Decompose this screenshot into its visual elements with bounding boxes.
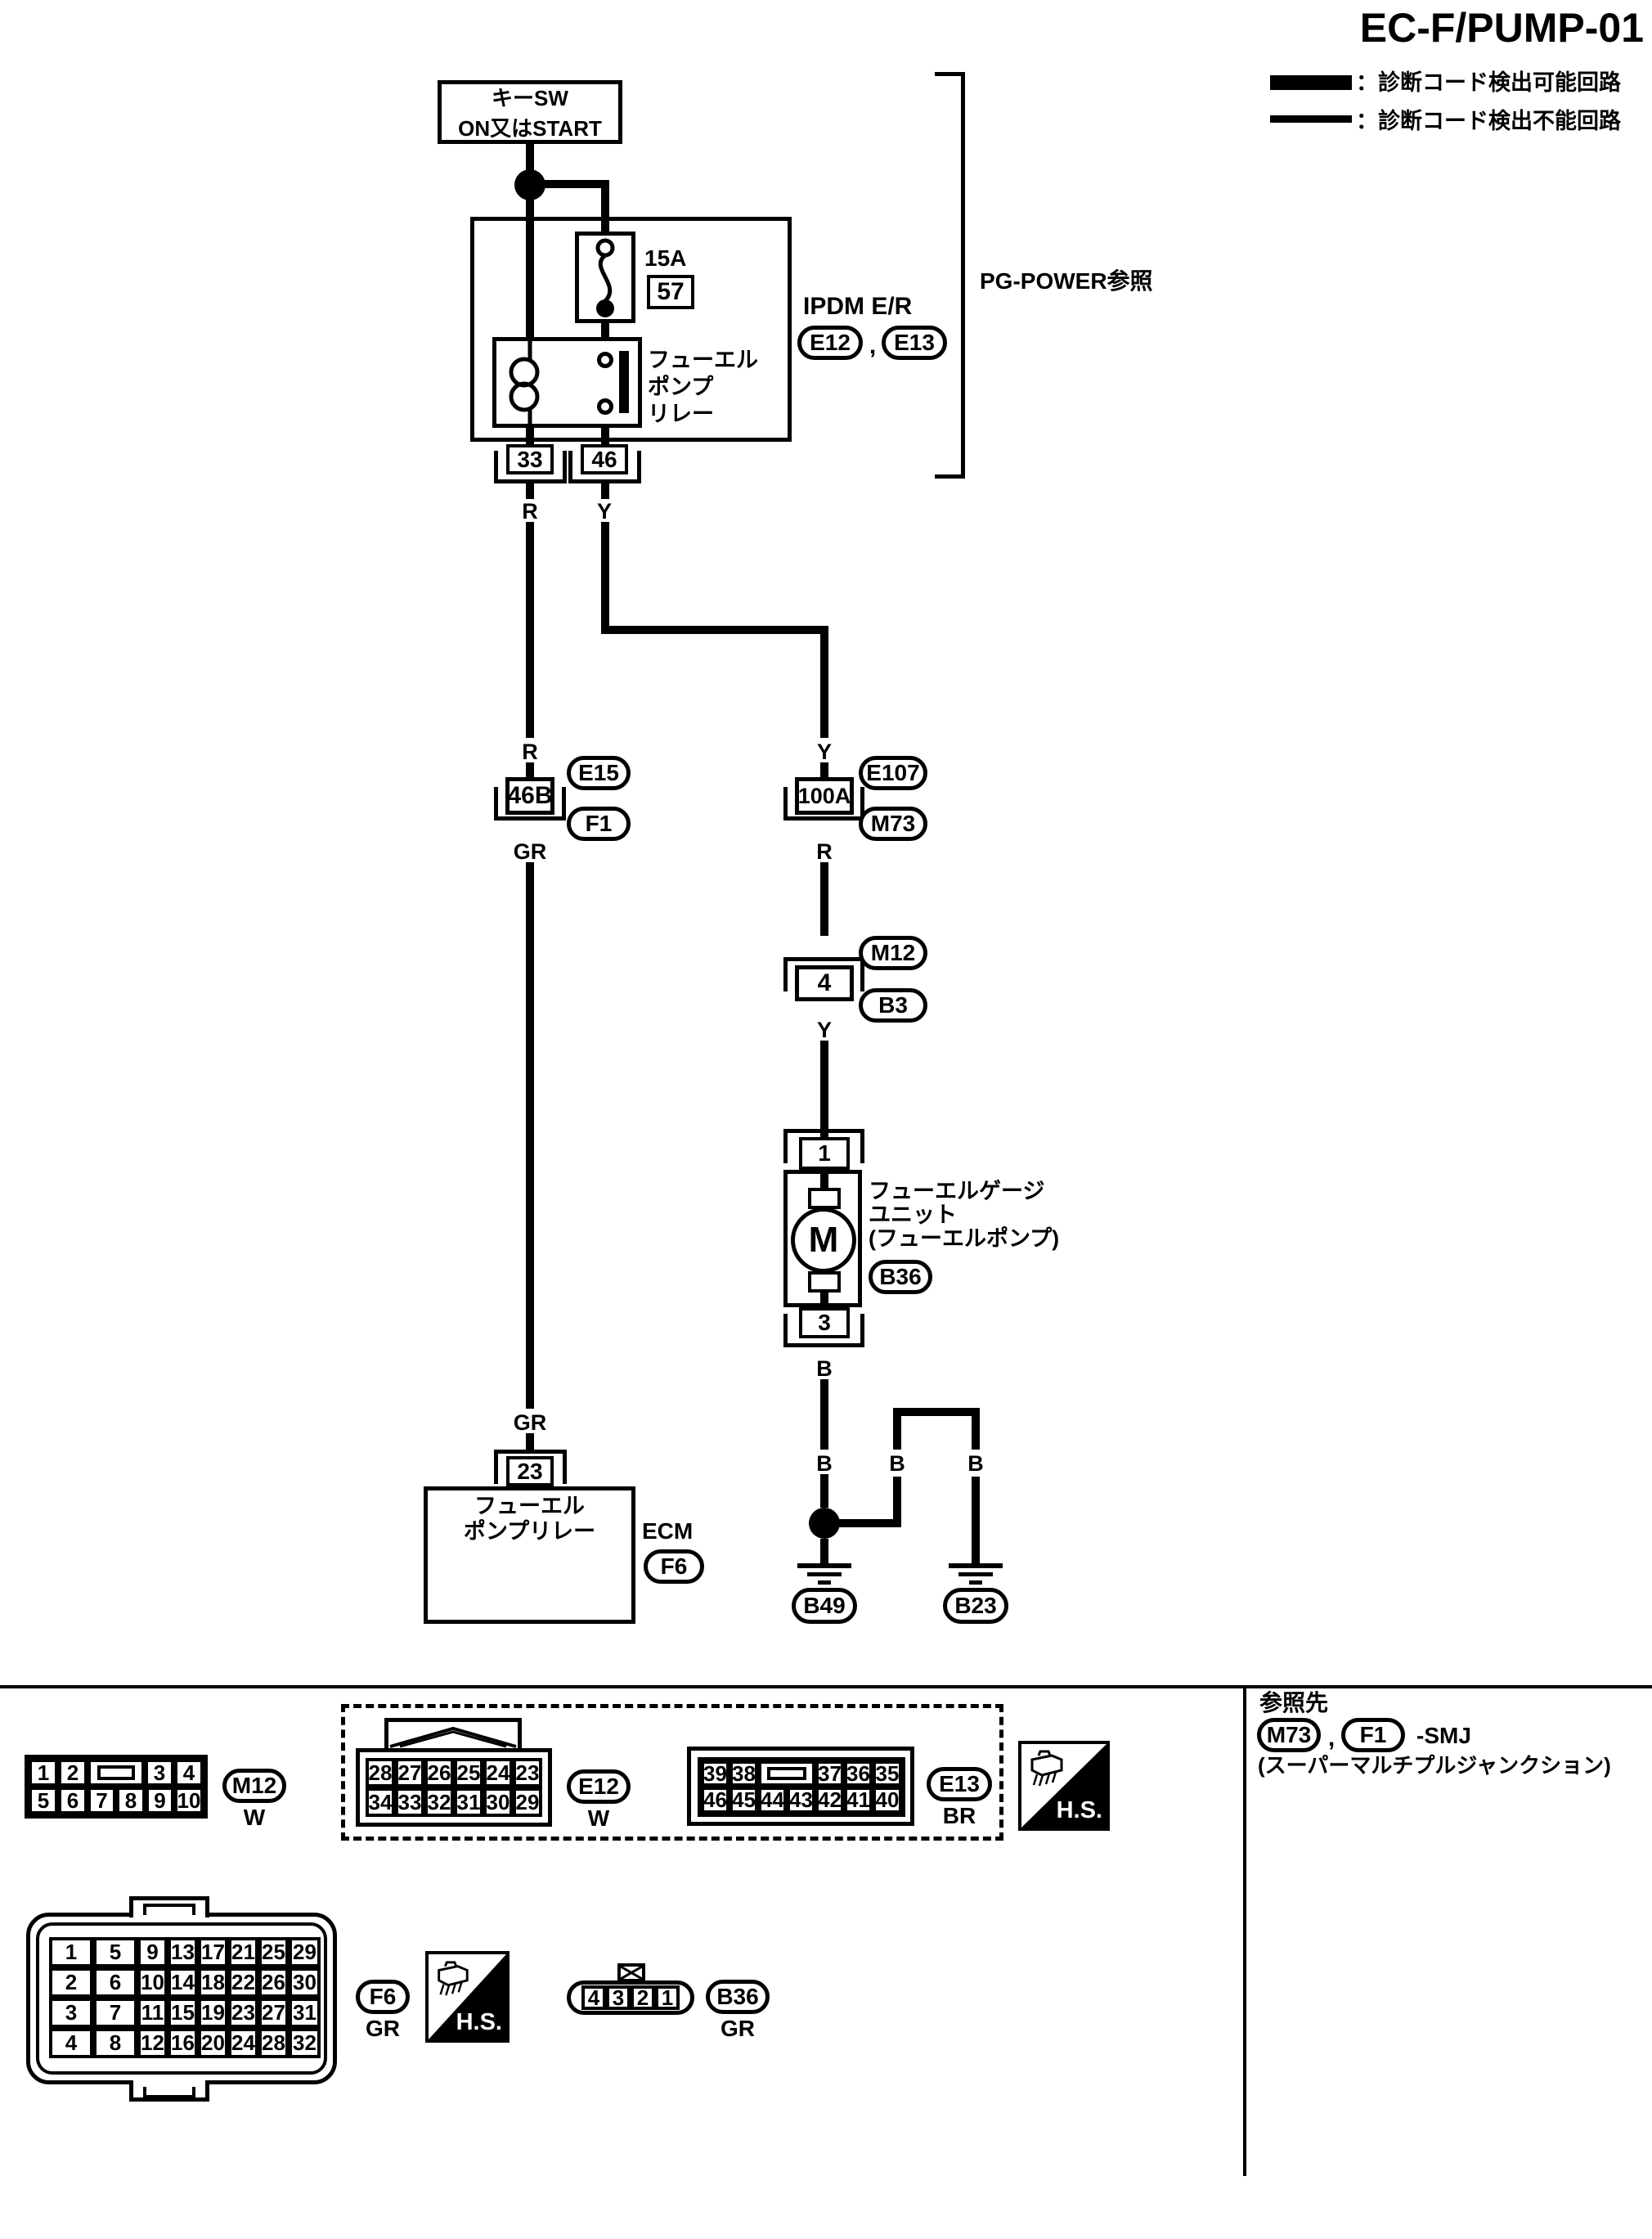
connector-ref-f6: F6 xyxy=(644,1549,704,1584)
reference-conn-m73: M73 xyxy=(1257,1718,1321,1752)
ecm-relay-name-line1: フューエル xyxy=(428,1494,631,1519)
b36-pin: 2 xyxy=(631,1985,655,2010)
f6-pin: 25 xyxy=(258,1937,289,1967)
f6-pin: 1 xyxy=(49,1937,93,1967)
pump-pin-3: 3 xyxy=(799,1307,850,1338)
key-switch-line2: ON又はSTART xyxy=(458,112,602,142)
smj100a-bracket-left xyxy=(783,787,788,821)
f6-pin: 27 xyxy=(258,1998,289,2028)
pump-pin1-bracket-top xyxy=(783,1129,864,1133)
f6-pin: 26 xyxy=(258,1967,289,1998)
m12-pin: 9 xyxy=(146,1787,174,1814)
relay-name: フューエル ポンプ リレー xyxy=(648,347,787,428)
wire-pin33-stub xyxy=(526,483,534,501)
pump-brush-top xyxy=(808,1188,841,1209)
connector-ref-e12: E12 xyxy=(797,326,863,360)
e12-pin: 31 xyxy=(454,1787,483,1817)
e12-color-code: W xyxy=(567,1805,631,1832)
wire-branch-left-v2 xyxy=(893,1474,901,1527)
wire-color-y-1: Y xyxy=(578,499,631,524)
f6-pin: 28 xyxy=(258,2028,289,2058)
wire-r-left xyxy=(526,522,534,738)
connector-icon xyxy=(1026,1748,1066,1789)
e13-pin: 45 xyxy=(729,1787,758,1814)
f6-pin: 12 xyxy=(137,2028,168,2058)
key-switch-box: キーSW ON又はSTART xyxy=(438,80,622,144)
m12-pin: 3 xyxy=(145,1759,174,1787)
f6-pin: 22 xyxy=(228,1967,258,1998)
relay-contact-top xyxy=(597,352,613,368)
ecm-pin-23: 23 xyxy=(506,1456,554,1486)
connector-ref-e107: E107 xyxy=(859,756,927,790)
relay-name-line1: フューエル xyxy=(648,347,787,374)
e13-color-code: BR xyxy=(927,1803,992,1829)
f6-pin: 7 xyxy=(93,1998,137,2028)
ground-b49-bar3 xyxy=(818,1580,831,1585)
ecm-label: ECM xyxy=(642,1518,724,1544)
wire-b-1 xyxy=(820,1379,828,1450)
f6-pin: 11 xyxy=(137,1998,168,2028)
e12-connector-label: E12 xyxy=(567,1769,631,1804)
smj100a-bracket-bottom xyxy=(783,816,864,821)
e12-connector-tab xyxy=(384,1718,522,1752)
e13-pin: 42 xyxy=(815,1787,844,1814)
b36-key-x-icon xyxy=(621,1967,642,1979)
f6-pin: 6 xyxy=(93,1967,137,1998)
f6-pin: 3 xyxy=(49,1998,93,2028)
ground-b49-bar2 xyxy=(807,1572,842,1576)
legend-thin-line xyxy=(1270,115,1352,123)
wire-y-down2 xyxy=(820,626,828,738)
pump-pin3-bracket-right xyxy=(860,1314,864,1347)
e13-pin: 35 xyxy=(873,1760,902,1787)
pump-lead-bottom xyxy=(820,1291,828,1309)
f6-pin: 30 xyxy=(289,1967,321,1998)
pin46-bracket-right xyxy=(637,451,641,483)
fuel-gauge-name-line1: フューエルゲージ xyxy=(869,1180,1138,1203)
wire-branch-to-fuse xyxy=(601,180,609,218)
legend-undetectable-text: ：診断コード検出不能回路 xyxy=(1356,109,1652,134)
e13-pin: 36 xyxy=(844,1760,873,1787)
f6-pin-grid: 1 5 9 13 17 21 25 29 2 6 10 14 18 22 26 … xyxy=(49,1937,321,2058)
ground-ref-b49: B49 xyxy=(792,1588,857,1624)
wire-b-2 xyxy=(820,1474,828,1508)
m12-pin: 8 xyxy=(116,1787,146,1814)
ground-b23-bar2 xyxy=(958,1572,993,1576)
f6-connector-label: F6 xyxy=(356,1980,410,2014)
wire-pin46-stub xyxy=(601,483,609,501)
e12-pin: 30 xyxy=(483,1787,513,1817)
wire-y-horizontal xyxy=(601,626,828,634)
fuse-icon xyxy=(579,236,631,319)
b36-connector-face: 4 3 2 1 xyxy=(567,1980,694,2015)
harness-side-view-symbol: H.S. xyxy=(425,1951,510,2043)
f6-pin: 32 xyxy=(289,2028,321,2058)
pin33-bracket-left xyxy=(494,451,498,483)
m12-key-slot xyxy=(88,1759,145,1787)
e12-pin: 29 xyxy=(513,1787,542,1817)
m12-pin: 1 xyxy=(29,1759,58,1787)
wire-ground-branch-h xyxy=(824,1519,901,1527)
harness-side-view-symbol: H.S. xyxy=(1018,1741,1110,1831)
fuel-gauge-name: フューエルゲージ ユニット (フューエルポンプ) xyxy=(869,1180,1138,1251)
wire-gr-to-ecm xyxy=(526,1433,534,1450)
hs-label: H.S. xyxy=(1057,1797,1102,1824)
e12-pin: 26 xyxy=(424,1758,454,1787)
wire-keysw-feed xyxy=(526,144,534,172)
m12-color-code: W xyxy=(222,1805,286,1831)
legend-detectable-text: ：診断コード検出可能回路 xyxy=(1356,70,1652,96)
wire-y-to-smj xyxy=(820,762,828,777)
m12-pin: 7 xyxy=(88,1787,116,1814)
pump-pin3-bracket-left xyxy=(783,1314,788,1347)
pump-brush-bottom xyxy=(808,1271,841,1293)
m12-pin: 5 xyxy=(29,1787,58,1814)
joint-bracket-left xyxy=(783,957,788,991)
e13-connector-face: 39 38 37 36 35 46 45 44 43 42 41 40 xyxy=(687,1747,914,1826)
b36-connector-label: B36 xyxy=(706,1980,770,2014)
pump-lead-top xyxy=(820,1170,828,1189)
reference-conn-f1: F1 xyxy=(1341,1718,1405,1752)
pin46-bracket-left xyxy=(568,451,572,483)
f6-color-code: GR xyxy=(356,2016,410,2042)
reference-comma: , xyxy=(1323,1724,1340,1753)
wire-contact-to-pin46 xyxy=(601,426,609,446)
e13-pin: 46 xyxy=(701,1787,729,1814)
key-switch-line1: キーSW xyxy=(492,82,568,112)
e12-pin: 34 xyxy=(366,1787,395,1817)
e13-pin: 37 xyxy=(815,1760,844,1787)
ecm-pin-bracket-top xyxy=(494,1450,567,1454)
f6-pin: 14 xyxy=(168,1967,198,1998)
wire-branch-horizontal xyxy=(530,180,609,188)
fuel-gauge-name-line3: (フューエルポンプ) xyxy=(869,1227,1138,1251)
pump-motor-symbol: M xyxy=(791,1207,856,1273)
wire-to-ground-b49 xyxy=(820,1539,828,1565)
fuse-symbol xyxy=(575,232,635,323)
relay-name-line2: ポンプ xyxy=(648,374,787,401)
b36-color-code: GR xyxy=(706,2016,770,2042)
f6-pin: 21 xyxy=(228,1937,258,1967)
b36-pin: 4 xyxy=(581,1985,606,2010)
pump-pin1-bracket-right xyxy=(860,1129,864,1163)
smj46b-bracket-left xyxy=(494,787,498,821)
connector-ref-e15: E15 xyxy=(567,756,631,790)
e13-pin: 44 xyxy=(758,1787,787,1814)
wire-branch-top-h xyxy=(893,1408,980,1416)
reference-bracket-top-tick xyxy=(935,72,965,76)
ground-ref-b23: B23 xyxy=(943,1588,1008,1624)
ipdm-pin-46: 46 xyxy=(581,444,628,474)
ipdm-unit-name: IPDM E/R xyxy=(803,293,983,321)
connector-icon xyxy=(433,1958,472,1999)
connector-ref-b36: B36 xyxy=(869,1260,932,1294)
f6-pin: 20 xyxy=(198,2028,228,2058)
wire-color-r-1: R xyxy=(504,499,556,524)
f6-pin: 8 xyxy=(93,2028,137,2058)
wire-color-b-1: B xyxy=(798,1356,851,1382)
e13-pin: 41 xyxy=(844,1787,873,1814)
wire-y-to-pump xyxy=(820,1041,828,1137)
hs-label: H.S. xyxy=(456,2009,502,2036)
connector-ref-e13: E13 xyxy=(882,326,947,360)
pump-pin3-bracket-bottom xyxy=(783,1343,864,1347)
e12-tab-chevron-icon xyxy=(388,1722,518,1748)
e13-key-slot xyxy=(758,1760,815,1787)
smj-pin-100a: 100A xyxy=(795,777,854,815)
ecm-box: フューエル ポンプリレー xyxy=(424,1486,635,1624)
footer-separator-line xyxy=(0,1685,1652,1688)
e13-pin: 43 xyxy=(787,1787,815,1814)
connector-ref-f1: F1 xyxy=(567,807,631,841)
m12-pin: 4 xyxy=(174,1759,204,1787)
smj-pin-46b: 46B xyxy=(505,777,554,815)
wire-r-to-smj xyxy=(526,762,534,777)
f6-pin: 24 xyxy=(228,2028,258,2058)
wire-y-down xyxy=(601,522,609,634)
wire-color-b-4: B xyxy=(949,1451,1002,1477)
legend-thick-line xyxy=(1270,75,1352,90)
b36-pin: 3 xyxy=(606,1985,631,2010)
ground-b23-bar1 xyxy=(949,1563,1003,1568)
wire-branch-right-v2 xyxy=(972,1474,980,1565)
page-title: EC-F/PUMP-01 xyxy=(1145,5,1644,52)
e12-pin: 25 xyxy=(454,1758,483,1787)
f6-pin: 15 xyxy=(168,1998,198,2028)
f6-pin: 16 xyxy=(168,2028,198,2058)
f6-pin: 18 xyxy=(198,1967,228,1998)
pump-pin-1: 1 xyxy=(799,1137,850,1170)
m12-connector-label: M12 xyxy=(222,1769,286,1803)
reference-smj-note: (スーパーマルチプルジャンクション) xyxy=(1258,1754,1650,1778)
wire-branch-right-v1 xyxy=(972,1416,980,1450)
wire-branch-left-v1 xyxy=(893,1416,901,1450)
relay-contact-bottom xyxy=(597,398,613,415)
ground-b23-bar3 xyxy=(969,1580,982,1585)
f6-pin: 2 xyxy=(49,1967,93,1998)
wire-color-y-2: Y xyxy=(798,740,851,765)
pin33-bracket-right xyxy=(563,451,567,483)
e13-pin: 40 xyxy=(873,1787,902,1814)
reference-smj-suffix: -SMJ xyxy=(1416,1723,1539,1749)
ecm-relay-name: フューエル ポンプリレー xyxy=(428,1490,631,1544)
wire-color-gr-1: GR xyxy=(504,839,556,865)
wire-gr-long xyxy=(526,862,534,1409)
ecm-relay-name-line2: ポンプリレー xyxy=(428,1519,631,1544)
relay-name-line3: リレー xyxy=(648,401,787,428)
b36-key-tab xyxy=(617,1963,645,1982)
e12-pin: 27 xyxy=(395,1758,424,1787)
wire-coil-to-pin33 xyxy=(526,426,534,446)
wiring-diagram-page: EC-F/PUMP-01 ：診断コード検出可能回路 ：診断コード検出不能回路 キ… xyxy=(0,0,1652,2239)
connector-comma: , xyxy=(864,332,881,361)
wire-color-y-3: Y xyxy=(798,1018,851,1043)
e13-pin: 38 xyxy=(729,1760,758,1787)
f6-pin: 31 xyxy=(289,1998,321,2028)
fuel-gauge-name-line2: ユニット xyxy=(869,1203,1138,1227)
ecm-pin-bracket-right xyxy=(563,1450,567,1484)
wire-color-gr-2: GR xyxy=(504,1410,556,1436)
fuse-rating-label: 15A xyxy=(644,245,710,272)
e12-pin: 24 xyxy=(483,1758,513,1787)
e12-pin: 32 xyxy=(424,1787,454,1817)
f6-pin: 13 xyxy=(168,1937,198,1967)
ground-b49-bar1 xyxy=(797,1563,851,1568)
f6-pin: 23 xyxy=(228,1998,258,2028)
wire-color-b-3: B xyxy=(871,1451,923,1477)
b36-pin: 1 xyxy=(655,1985,680,2010)
e13-pin: 39 xyxy=(701,1760,729,1787)
connector-ref-m73: M73 xyxy=(859,807,927,841)
f6-top-tab xyxy=(129,1896,209,1918)
wire-r-mid xyxy=(820,862,828,936)
e12-connector-face: 28 27 26 25 24 23 34 33 32 31 30 29 xyxy=(356,1748,552,1827)
reference-heading: 参照先 xyxy=(1259,1690,1423,1716)
wire-color-b-2: B xyxy=(798,1451,851,1477)
f6-pin: 10 xyxy=(137,1967,168,1998)
e12-pin: 23 xyxy=(513,1758,542,1787)
joint-pin-4: 4 xyxy=(795,965,854,1001)
wire-color-r-2: R xyxy=(504,740,556,765)
reference-bracket-bottom-tick xyxy=(935,474,965,479)
f6-pin: 19 xyxy=(198,1998,228,2028)
reference-bracket-vertical xyxy=(961,72,965,479)
pump-pin1-bracket-left xyxy=(783,1129,788,1163)
m12-connector-face: 1 2 3 4 5 6 7 8 9 10 xyxy=(25,1755,208,1819)
e13-connector-label: E13 xyxy=(927,1767,992,1801)
e12-pin: 33 xyxy=(395,1787,424,1817)
connector-ref-m12: M12 xyxy=(859,936,927,970)
relay-coil-icon xyxy=(496,341,570,424)
m12-pin: 10 xyxy=(174,1787,204,1814)
f6-pin: 5 xyxy=(93,1937,137,1967)
smj46b-bracket-right xyxy=(562,787,566,821)
pg-power-reference-note: PG-POWER参照 xyxy=(980,268,1274,294)
footer-vertical-divider xyxy=(1243,1685,1246,2176)
joint-bracket-top xyxy=(783,957,864,961)
m12-pin: 2 xyxy=(58,1759,88,1787)
e12-pin: 28 xyxy=(366,1758,395,1787)
smj46b-bracket-bottom xyxy=(494,816,566,821)
f6-bottom-tab xyxy=(129,2080,209,2102)
wire-color-r-3: R xyxy=(798,839,851,865)
connector-ref-b3: B3 xyxy=(859,988,927,1023)
ecm-pin-bracket-left xyxy=(494,1450,498,1484)
relay-contact-blade xyxy=(619,351,629,413)
f6-pin: 17 xyxy=(198,1937,228,1967)
m12-pin: 6 xyxy=(58,1787,88,1814)
ipdm-pin-33: 33 xyxy=(506,444,554,474)
fuse-number-box: 57 xyxy=(647,275,694,309)
f6-pin: 29 xyxy=(289,1937,321,1967)
f6-pin: 9 xyxy=(137,1937,168,1967)
wire-coil-feed xyxy=(526,215,534,339)
f6-pin: 4 xyxy=(49,2028,93,2058)
